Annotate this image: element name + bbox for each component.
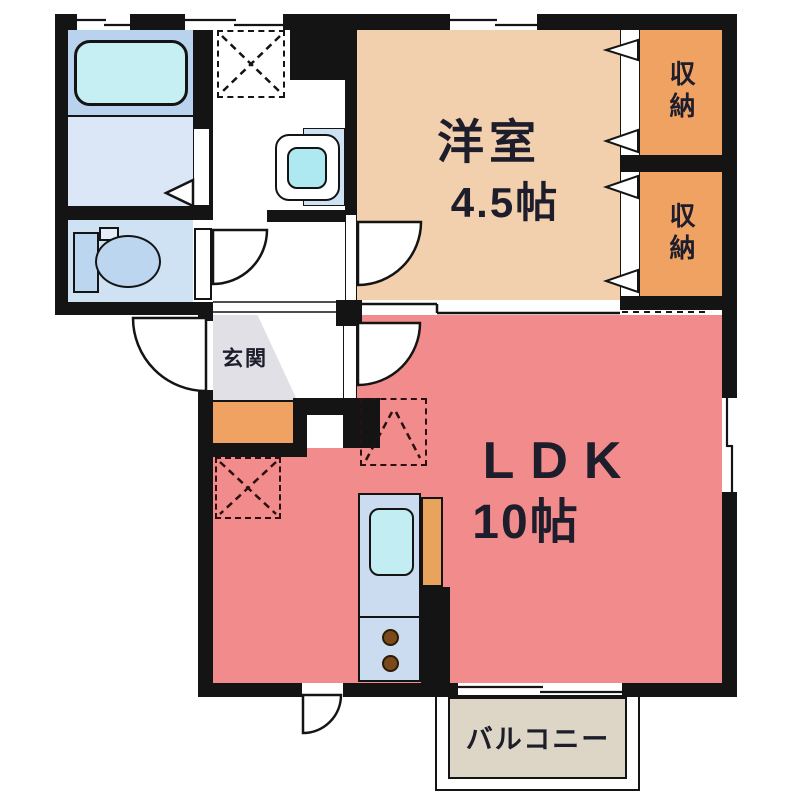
western-door-swing — [358, 222, 421, 285]
entrance-label: 玄関 — [222, 349, 268, 370]
bathroom-folding-door-icon — [166, 180, 193, 206]
refrigerator-chevron — [366, 412, 420, 460]
floor-plan: 洋室 4.5帖 収納 収納 玄関 LDK 10帖 バルコニー — [0, 0, 799, 800]
storage-top-label: 収納 — [668, 60, 694, 124]
entrance-door-swing — [133, 318, 206, 391]
western-room-size: 4.5帖 — [451, 182, 559, 224]
closet-door-icon-3 — [606, 176, 638, 198]
washroom-door-swing — [213, 230, 267, 284]
back-door-swing — [303, 695, 341, 733]
ldk-space-x — [220, 462, 276, 514]
ldk-door-swing — [358, 323, 420, 385]
closet-door-icon-4 — [606, 270, 638, 292]
western-room-label: 洋室 — [437, 119, 541, 166]
balcony-label: バルコニー — [466, 727, 610, 754]
closet-door-icon-2 — [606, 130, 638, 152]
washing-machine-x — [222, 36, 280, 92]
sliding-partition — [358, 304, 620, 313]
ldk-size: 10帖 — [472, 499, 579, 547]
storage-bottom-label: 収納 — [668, 202, 694, 266]
ldk-label: LDK — [483, 435, 638, 487]
hallway-step-lines — [213, 302, 336, 312]
closet-door-icon-1 — [606, 40, 638, 60]
